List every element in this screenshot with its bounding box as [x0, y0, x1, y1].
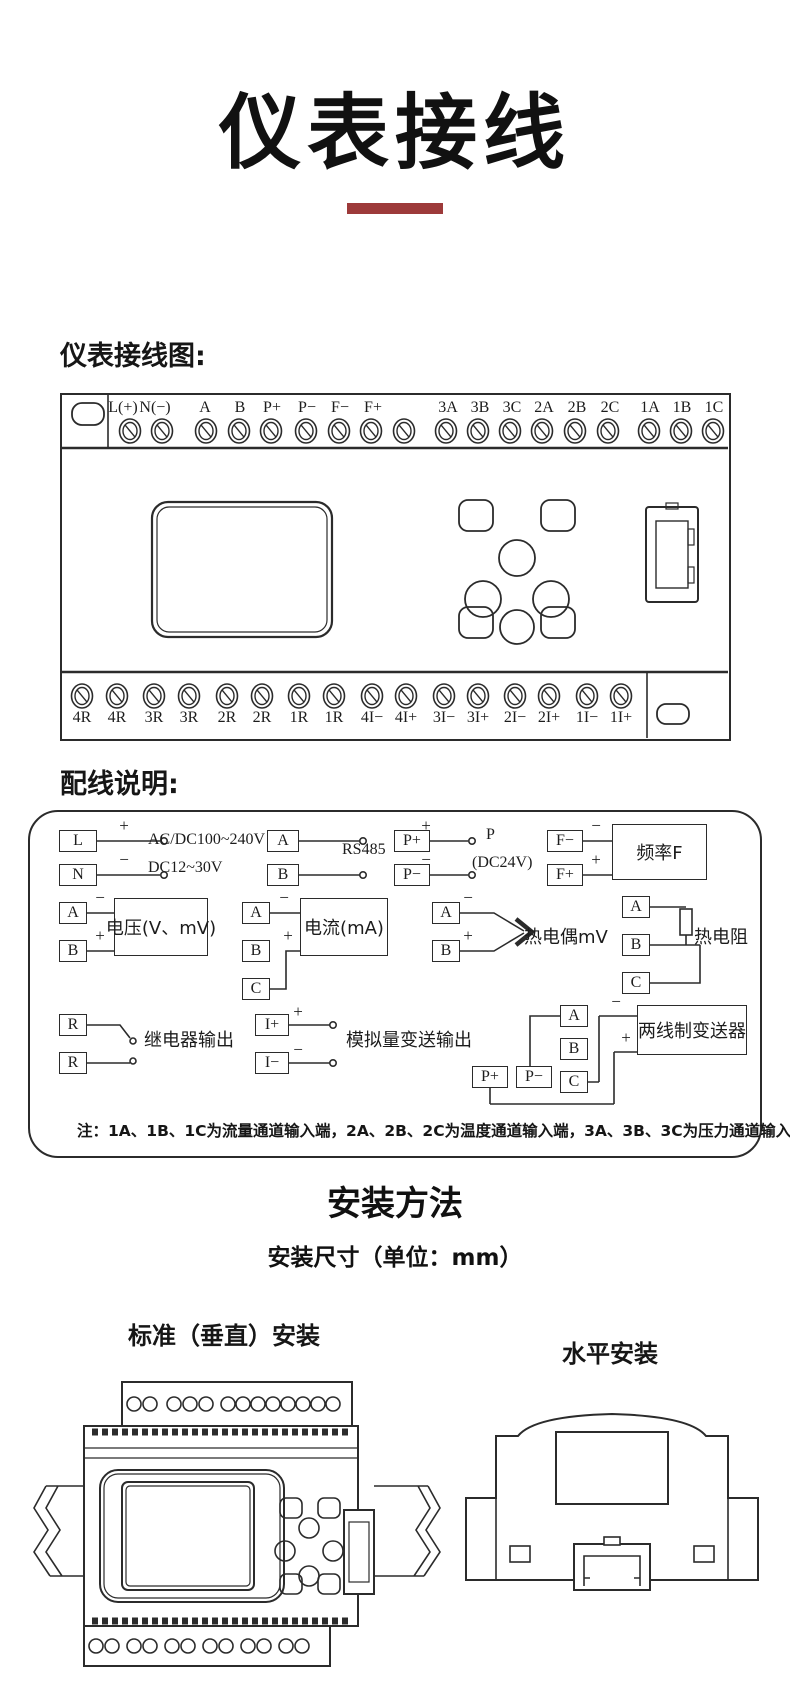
terminal-label: 2I+ [538, 709, 560, 727]
wiring-label-rtd: 热电阻 [694, 923, 748, 949]
polarity-sign: + [416, 816, 436, 836]
terminal-box-power: N [59, 864, 97, 886]
terminal-box-two-wire-transmitter: B [560, 1038, 588, 1060]
terminal-box-thermocouple: B [432, 940, 460, 962]
terminal-box-two-wire-transmitter: P+ [472, 1066, 508, 1088]
wiring-groups: LN+−AC/DC100~240VDC12~30VABRS485P+P−+−P(… [30, 812, 760, 1156]
terminal-box-power: L [59, 830, 97, 852]
terminal-label: 3I+ [467, 709, 489, 727]
terminal-box-voltage: B [59, 940, 87, 962]
terminal-box-rtd: C [622, 972, 650, 994]
terminal-label: 4I+ [395, 709, 417, 727]
wiring-label-analog-output: 模拟量变送输出 [346, 1026, 472, 1052]
polarity-sign: − [288, 1040, 308, 1060]
wiring-panel-heading: 配线说明: [60, 762, 179, 801]
horizontal-install-label: 水平安装 [562, 1334, 658, 1369]
terminal-box-frequency: F− [547, 830, 583, 852]
terminal-label: 2R [253, 709, 272, 727]
terminal-label: 1I− [576, 709, 598, 727]
mounting-hole-left [510, 1546, 530, 1562]
wiring-label-power: DC12~30V [148, 859, 222, 877]
page: 仪表接线 仪表接线图: [0, 0, 790, 1682]
terminal-label: 2R [218, 709, 237, 727]
terminal-label: 1R [290, 709, 309, 727]
terminal-label: 1R [325, 709, 344, 727]
polarity-sign: + [458, 926, 478, 946]
terminal-label: 4I− [361, 709, 383, 727]
polarity-sign: − [586, 816, 606, 836]
terminal-box-rs485: A [267, 830, 299, 852]
terminal-diagram-heading: 仪表接线图: [60, 334, 206, 373]
polarity-sign: − [114, 850, 134, 870]
terminal-box-thermocouple: A [432, 902, 460, 924]
wiring-device-box-voltage: 电压(V、mV) [114, 898, 208, 956]
title-underline [347, 203, 443, 214]
din-rail-right [374, 1486, 440, 1576]
terminal-box-analog-output: I+ [255, 1014, 289, 1036]
wiring-label-aux-power: (DC24V) [472, 854, 532, 872]
wiring-device-box-current: 电流(mA) [300, 898, 388, 956]
wiring-label-relay: 继电器输出 [144, 1026, 234, 1052]
polarity-sign: − [416, 850, 436, 870]
din-rail-clip [574, 1537, 650, 1590]
wiring-label-aux-power: P [486, 826, 495, 844]
terminal-box-two-wire-transmitter: A [560, 1005, 588, 1027]
vertical-install-label: 标准（垂直）安装 [128, 1316, 320, 1351]
terminal-diagram: L(+)N(−)ABP+P−F−F+3A3B3C2A2B2C1A1B1C 4R4… [60, 393, 731, 741]
polarity-sign: − [606, 992, 626, 1012]
terminal-box-frequency: F+ [547, 864, 583, 886]
terminal-label: 3I− [433, 709, 455, 727]
bottom-terminal-labels: 4R4R3R3R2R2R1R1R4I−4I+3I−3I+2I−2I+1I−1I+ [62, 395, 729, 739]
terminal-label: 4R [73, 709, 92, 727]
din-rail-left [34, 1486, 84, 1576]
polarity-sign: − [90, 888, 110, 908]
wiring-label-power: AC/DC100~240V [148, 831, 265, 849]
page-title: 仪表接线 [0, 66, 790, 185]
polarity-sign: + [586, 850, 606, 870]
terminal-label: 3R [145, 709, 164, 727]
polarity-sign: + [288, 1002, 308, 1022]
wiring-note: 注：1A、1B、1C为流量通道输入端，2A、2B、2C为温度通道输入端，3A、3… [77, 1119, 790, 1141]
terminal-label: 1I+ [610, 709, 632, 727]
vertical-install-diagram [28, 1378, 448, 1670]
terminal-box-relay: R [59, 1052, 87, 1074]
installation-subtitle: 安装尺寸（单位：mm） [0, 1238, 790, 1272]
installation-title: 安装方法 [0, 1176, 790, 1225]
terminal-box-two-wire-transmitter: C [560, 1071, 588, 1093]
horizontal-install-diagram [452, 1398, 772, 1618]
wiring-label-rs485: RS485 [342, 841, 386, 859]
terminal-label: 3R [180, 709, 199, 727]
wiring-device-box-two-wire-transmitter: 两线制变送器 [637, 1005, 747, 1055]
terminal-box-current: B [242, 940, 270, 962]
terminal-box-rs485: B [267, 864, 299, 886]
device-body [84, 1426, 358, 1626]
wiring-panel: LN+−AC/DC100~240VDC12~30VABRS485P+P−+−P(… [28, 810, 762, 1158]
terminal-box-rtd: A [622, 896, 650, 918]
terminal-box-current: C [242, 978, 270, 1000]
terminal-box-two-wire-transmitter: P− [516, 1066, 552, 1088]
polarity-sign: − [458, 888, 478, 908]
terminal-box-analog-output: I− [255, 1052, 289, 1074]
polarity-sign: + [278, 926, 298, 946]
terminal-label: 2I− [504, 709, 526, 727]
terminal-label: 4R [108, 709, 127, 727]
terminal-box-current: A [242, 902, 270, 924]
terminal-box-voltage: A [59, 902, 87, 924]
wiring-label-thermocouple: 热电偶mV [524, 923, 608, 949]
polarity-sign: + [114, 816, 134, 836]
terminal-box-rtd: B [622, 934, 650, 956]
polarity-sign: − [274, 888, 294, 908]
polarity-sign: + [616, 1028, 636, 1048]
terminal-box-relay: R [59, 1014, 87, 1036]
display-window [556, 1432, 668, 1504]
mounting-hole-right [694, 1546, 714, 1562]
wiring-device-box-frequency: 频率F [612, 824, 707, 880]
